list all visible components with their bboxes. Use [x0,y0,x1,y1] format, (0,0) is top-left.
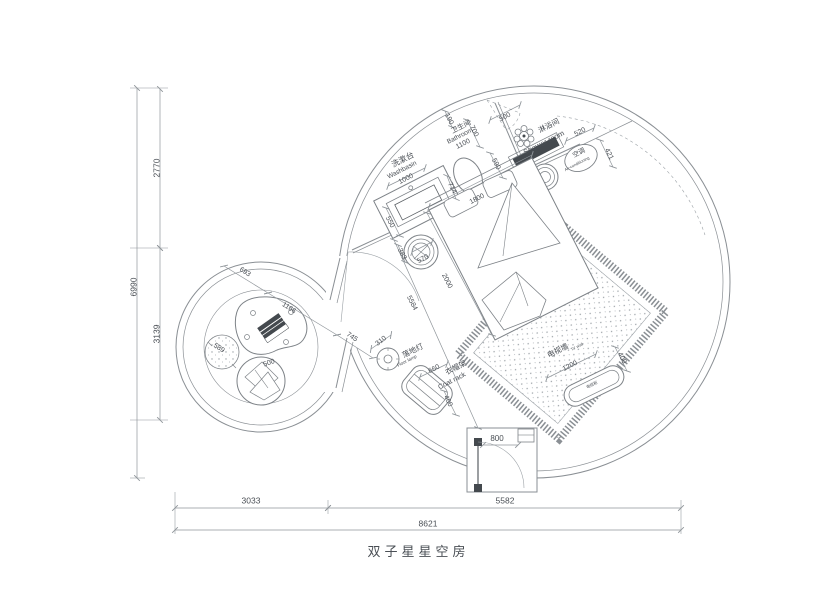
floor-plan-drawing: 277069903139303355828621洗漱台Washbasin1000… [0,0,837,592]
label-dim-800: 800 [490,434,504,443]
dim-line [593,124,596,132]
dim-line [519,101,522,109]
label-dim-3033: 3033 [242,495,261,505]
dim-line [424,164,427,172]
label-dim-520: 520 [573,126,587,138]
dim-line [623,370,631,373]
dim-line [441,110,448,113]
label-dim-8621: 8621 [419,518,438,528]
floor-plan-canvas: 277069903139303355828621洗漱台Washbasin1000… [0,0,837,592]
dim-line [394,243,401,246]
dim-line [596,139,604,142]
dim-line [264,292,272,294]
floor-lamp [377,348,399,370]
label-dim-421: 421 [603,147,615,161]
dim-line [390,239,397,242]
dim-line [489,116,492,124]
dim-line [369,357,377,359]
dim-line [565,137,568,145]
door-frame-block [518,429,534,442]
label-dim-6990: 6990 [128,277,138,296]
label-dim-3139: 3139 [151,324,161,343]
label-dim-2000: 2000 [440,273,453,290]
label-dim-500-top: 500 [498,111,512,123]
label-dim-5582: 5582 [496,495,515,505]
dim-line [609,166,617,169]
dim-line [452,414,460,417]
label-dim-2770: 2770 [151,158,161,177]
walls [176,86,730,478]
kidney-table [235,297,306,355]
dim-line [220,265,228,267]
label-dim-5584: 5584 [405,295,418,312]
label-dim-190: 190 [443,112,455,126]
dim-line [387,182,390,190]
label-dim-310: 310 [374,335,388,348]
label-dim-693: 693 [238,266,252,278]
blanket-basket [237,357,285,405]
dim-line [476,146,484,149]
plan-title: 双子星星空房 [0,541,837,560]
dim-line [486,152,494,154]
